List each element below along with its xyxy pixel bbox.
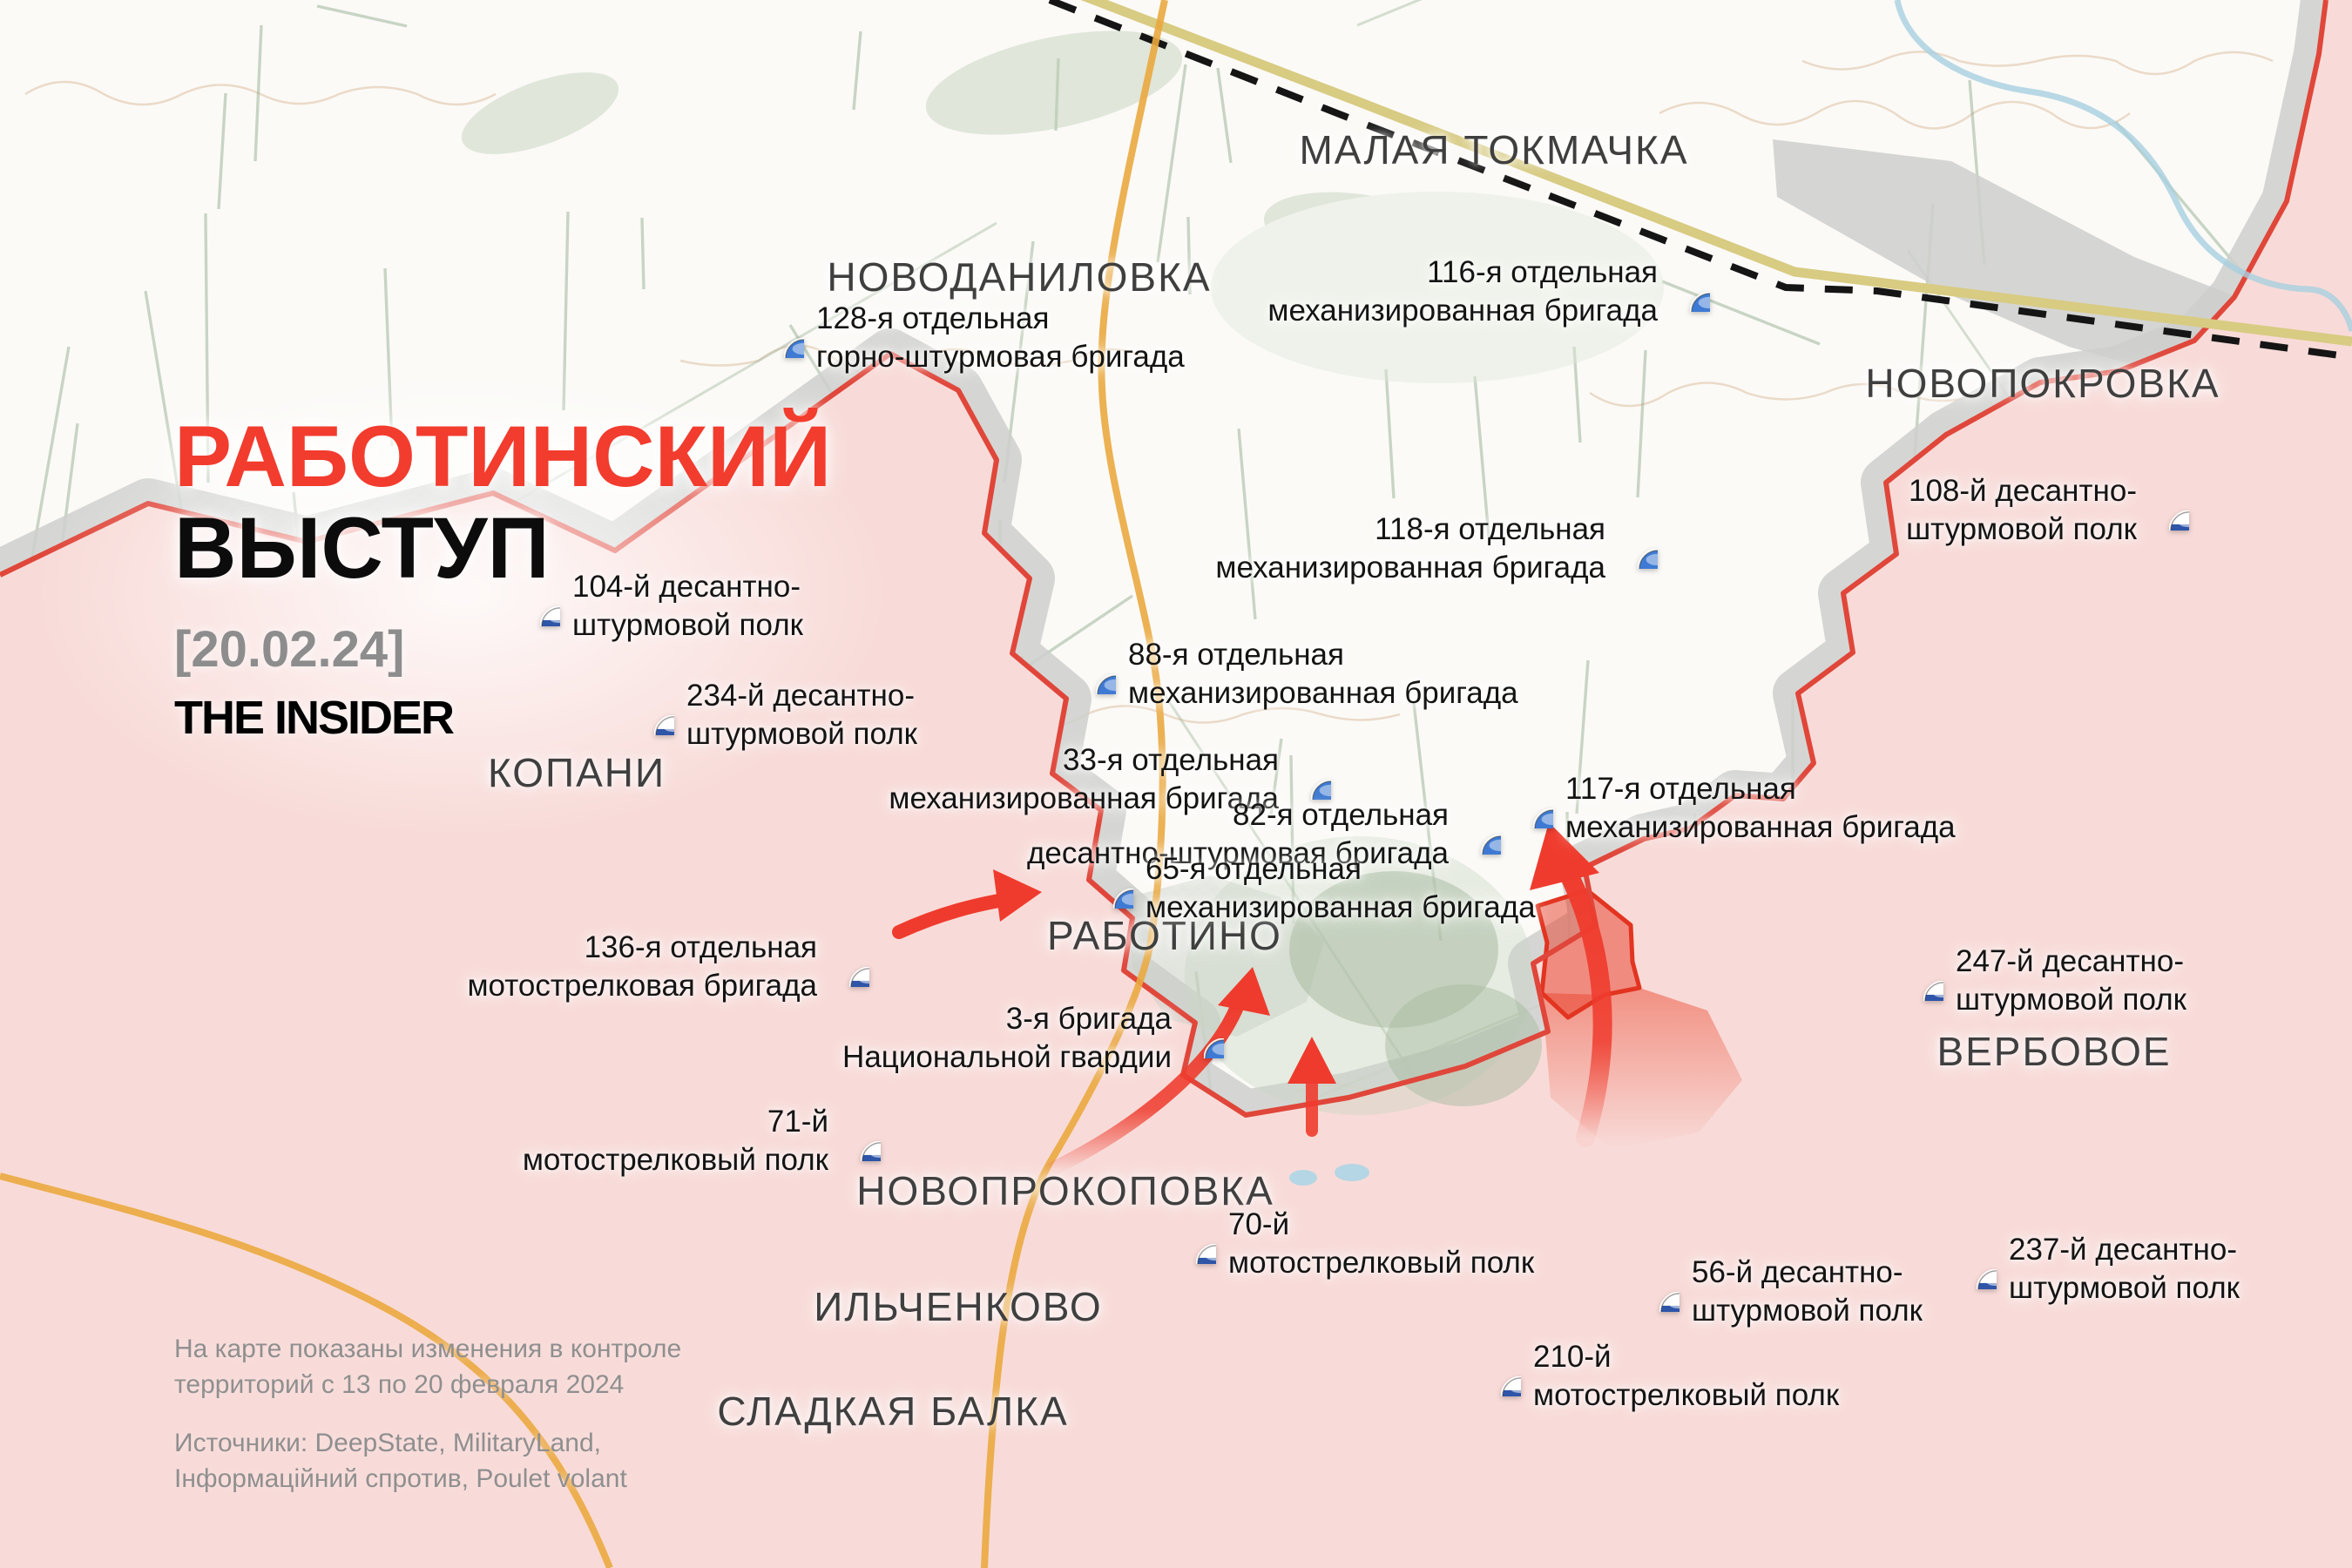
map-canvas: МАЛАЯ ТОКМАЧКАНОВОДАНИЛОВКАНОВОПОКРОВКАК… <box>0 0 2352 1568</box>
terrain-map <box>0 0 2352 1568</box>
